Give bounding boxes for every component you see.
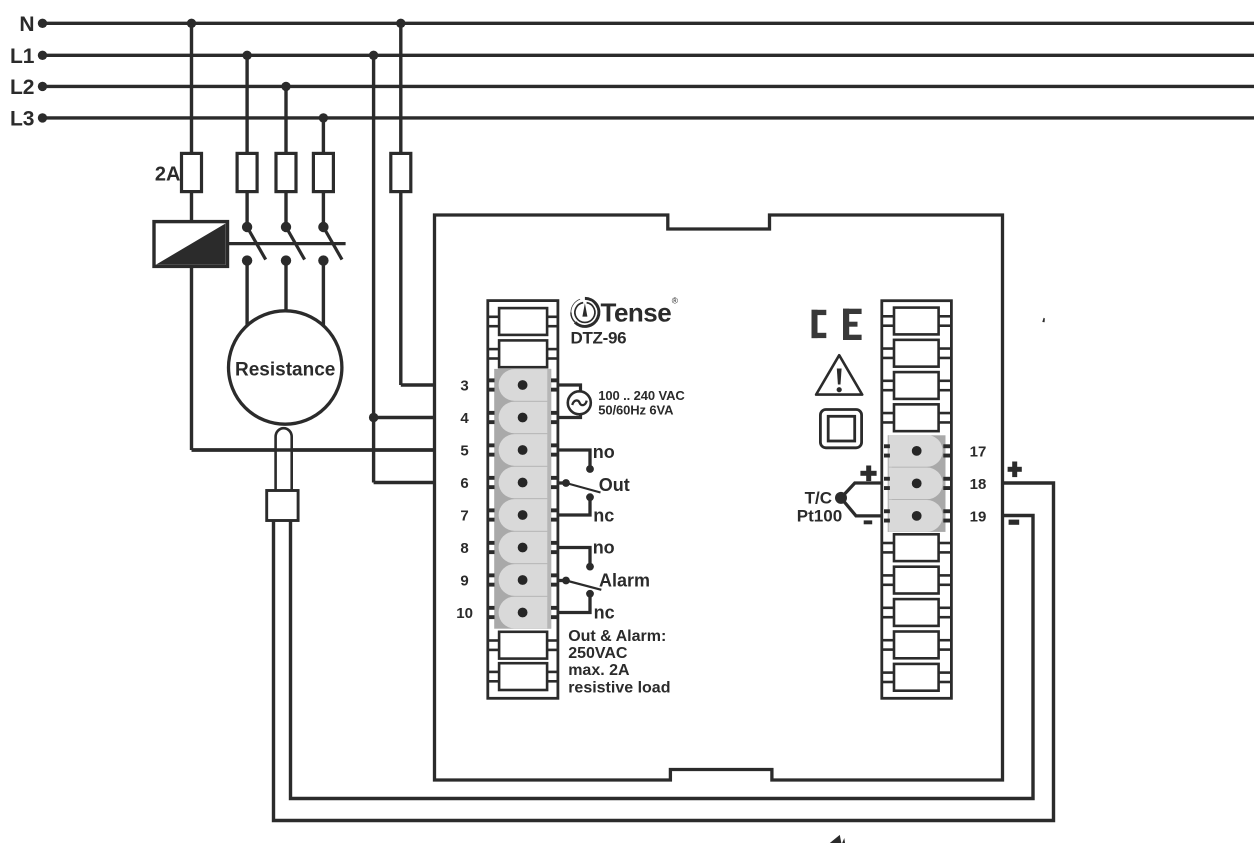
svg-text:4: 4 bbox=[460, 410, 469, 427]
svg-text:Out: Out bbox=[599, 475, 630, 495]
svg-text:DTZ-96: DTZ-96 bbox=[571, 328, 627, 347]
svg-text:nc: nc bbox=[594, 603, 615, 623]
svg-text:L1: L1 bbox=[10, 45, 35, 68]
svg-text:17: 17 bbox=[970, 443, 987, 460]
svg-text:10: 10 bbox=[456, 605, 473, 622]
svg-text:no: no bbox=[593, 538, 615, 558]
svg-text:50/60Hz 6VA: 50/60Hz 6VA bbox=[598, 402, 674, 417]
svg-text:no: no bbox=[593, 442, 615, 462]
svg-text:®: ® bbox=[672, 296, 679, 306]
svg-text:Resistance: Resistance bbox=[235, 359, 335, 380]
svg-text:3: 3 bbox=[460, 377, 468, 394]
svg-text:100 .. 240 VAC: 100 .. 240 VAC bbox=[598, 388, 685, 403]
svg-text:Alarm: Alarm bbox=[599, 571, 650, 591]
svg-text:Out & Alarm:: Out & Alarm: bbox=[568, 628, 666, 645]
svg-text:nc: nc bbox=[593, 506, 614, 526]
svg-text:T/C: T/C bbox=[805, 489, 832, 508]
svg-text:Pt100: Pt100 bbox=[797, 507, 842, 526]
svg-text:7: 7 bbox=[460, 507, 468, 524]
svg-text:L3: L3 bbox=[10, 108, 35, 131]
svg-text:18: 18 bbox=[970, 476, 987, 493]
svg-text:5: 5 bbox=[460, 442, 468, 459]
svg-text:8: 8 bbox=[460, 540, 468, 557]
svg-text:Tense: Tense bbox=[601, 298, 672, 328]
svg-text:resistive load: resistive load bbox=[568, 679, 670, 696]
svg-text:6: 6 bbox=[460, 475, 468, 492]
svg-text:250VAC: 250VAC bbox=[568, 645, 628, 662]
svg-text:9: 9 bbox=[460, 572, 468, 589]
svg-text:max. 2A: max. 2A bbox=[568, 662, 630, 679]
svg-text:2A: 2A bbox=[155, 164, 181, 186]
svg-text:L2: L2 bbox=[10, 76, 35, 99]
svg-text:N: N bbox=[19, 13, 34, 36]
svg-text:19: 19 bbox=[970, 508, 987, 525]
